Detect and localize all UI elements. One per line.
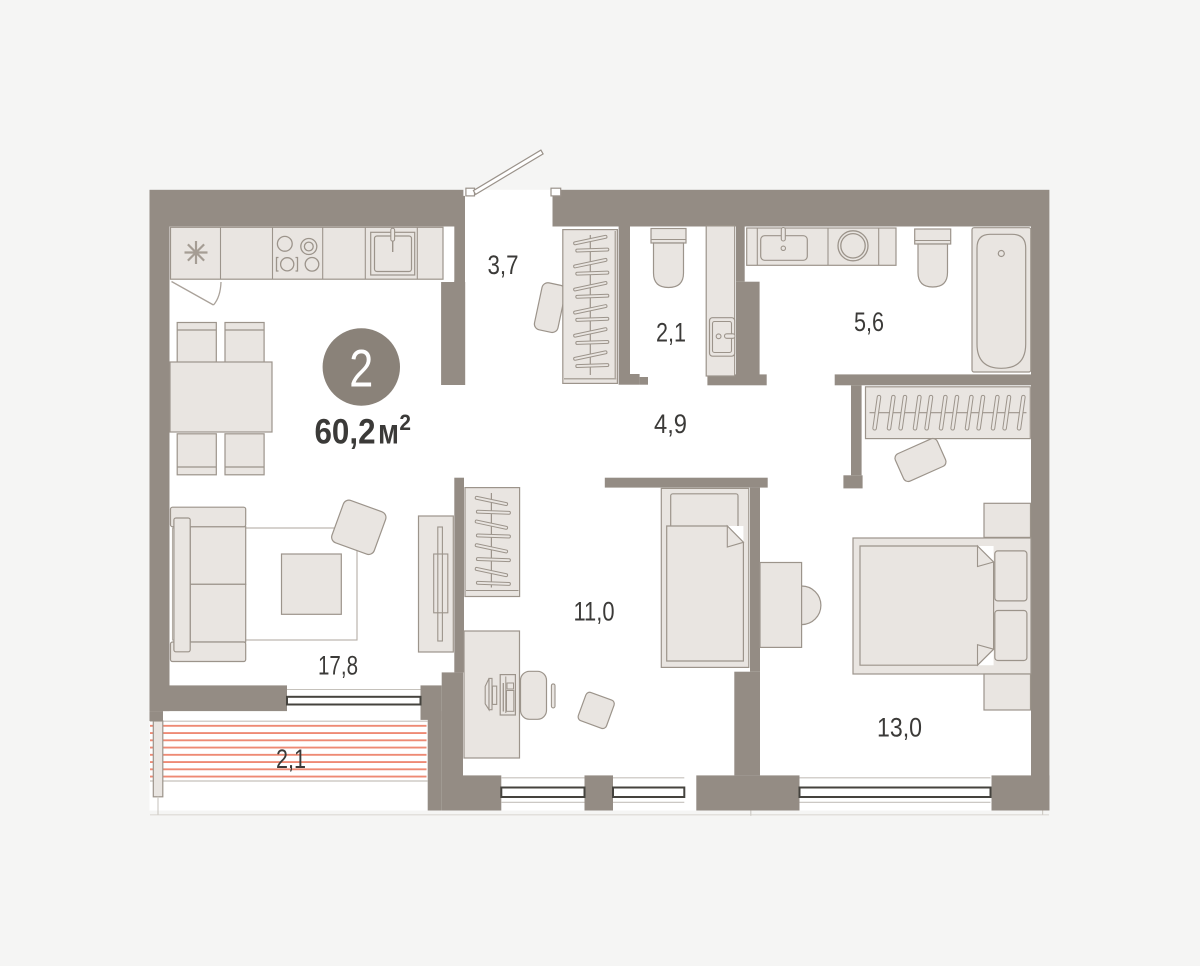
svg-text:м: м	[378, 413, 399, 452]
svg-text:3,7: 3,7	[488, 250, 519, 280]
svg-text:60,2: 60,2	[315, 413, 376, 452]
svg-text:17,8: 17,8	[318, 651, 358, 681]
svg-text:2: 2	[399, 410, 411, 435]
svg-text:5,6: 5,6	[854, 307, 884, 337]
svg-text:13,0: 13,0	[877, 713, 922, 743]
svg-text:11,0: 11,0	[574, 597, 615, 627]
svg-text:2,1: 2,1	[656, 318, 686, 348]
svg-text:2: 2	[349, 340, 373, 399]
svg-text:4,9: 4,9	[654, 409, 687, 439]
svg-text:2,1: 2,1	[276, 744, 306, 774]
